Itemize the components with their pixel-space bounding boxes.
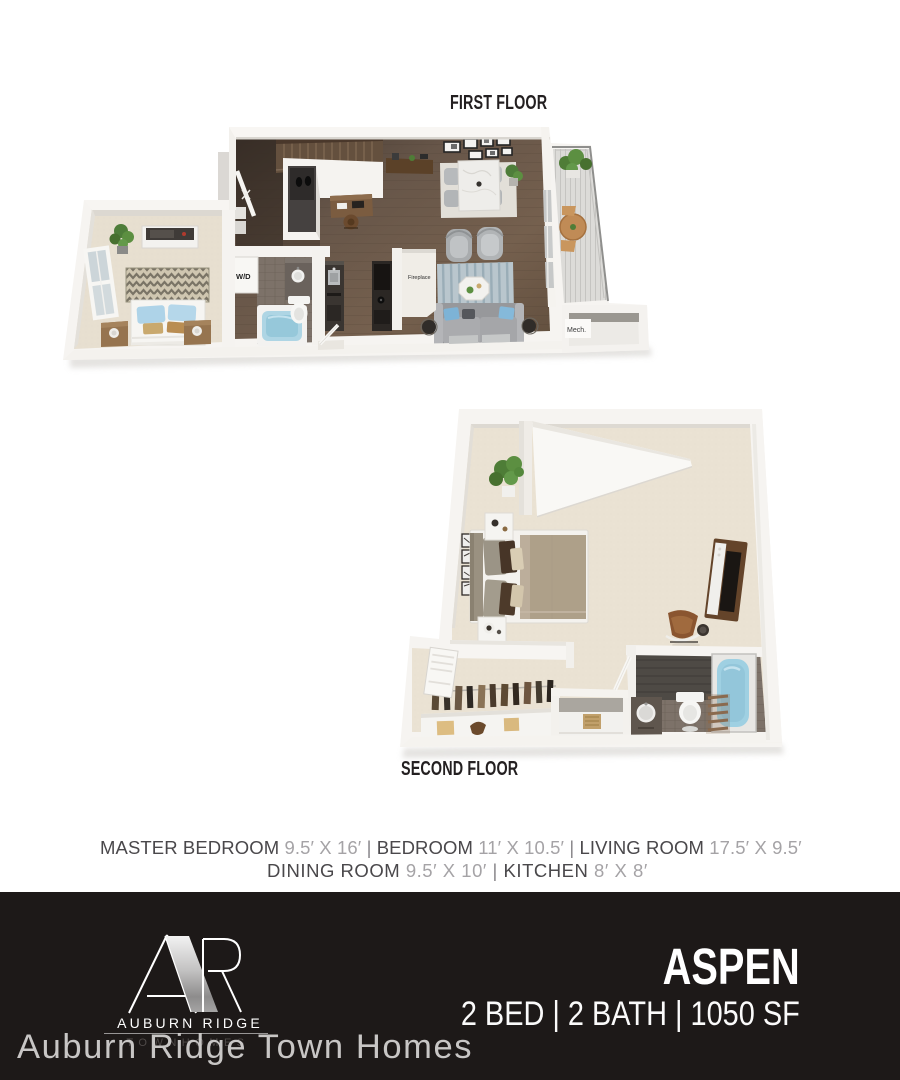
svg-text:Mech.: Mech.	[567, 327, 586, 334]
svg-text:Fireplace: Fireplace	[408, 275, 431, 281]
svg-text:W/D: W/D	[236, 272, 251, 281]
